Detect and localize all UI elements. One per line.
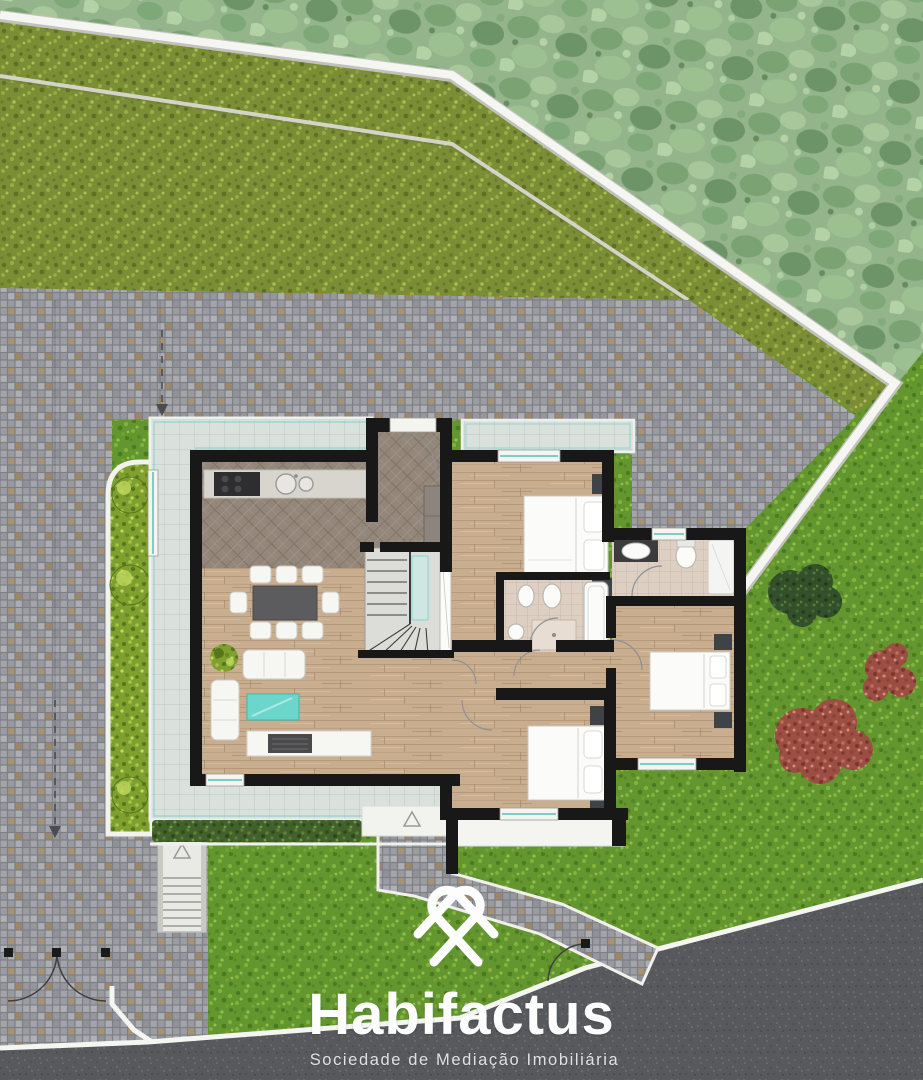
sofa-horizontal	[243, 650, 305, 679]
porch	[452, 818, 624, 846]
plant	[210, 644, 238, 672]
terrace-right	[462, 420, 634, 452]
stove	[214, 472, 260, 496]
toilet	[676, 544, 696, 568]
pedestal-sink	[508, 624, 524, 640]
dining-table	[253, 586, 317, 620]
sofa-vertical	[211, 680, 239, 740]
washbasin	[622, 543, 650, 559]
bedroom1-north-window	[498, 450, 560, 462]
toilet	[543, 584, 561, 608]
bathroom-north-window	[652, 528, 686, 540]
stair-void	[412, 556, 428, 620]
kitchen	[204, 470, 366, 498]
exterior-stairs	[158, 834, 206, 932]
kitchen-west-window	[148, 470, 158, 556]
bedroom2-south-window	[500, 808, 558, 820]
bidet	[518, 585, 534, 607]
site-plan-drawing	[0, 0, 923, 1080]
sink-bowl-small	[299, 477, 313, 491]
living-south-window	[206, 774, 244, 786]
entry-door-gap	[390, 418, 436, 432]
staircase	[365, 548, 451, 656]
bedroom3-south-window	[638, 758, 696, 770]
site-plan: Habifactus Sociedade de Mediação Imobili…	[0, 0, 923, 1080]
sink-bowl-large	[276, 474, 296, 494]
planter-strip	[108, 462, 152, 834]
gate-post	[581, 939, 590, 948]
